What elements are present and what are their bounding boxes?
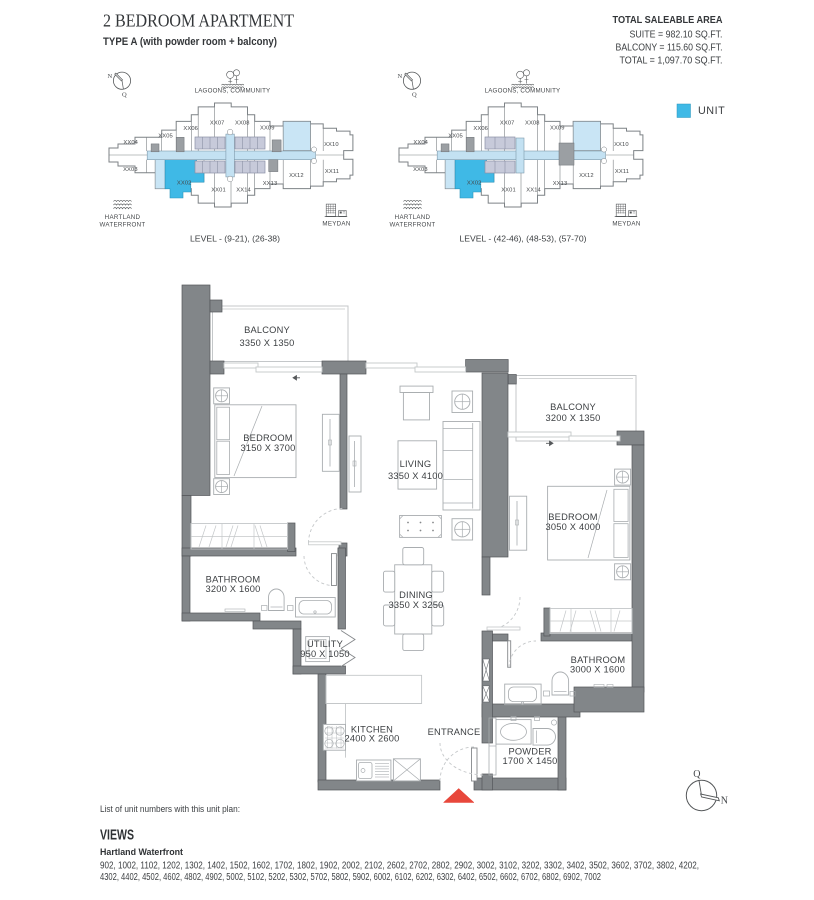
- svg-text:XX10: XX10: [614, 142, 629, 148]
- svg-text:XX12: XX12: [289, 173, 304, 179]
- svg-text:XX07: XX07: [210, 120, 225, 126]
- svg-text:3200 X 1600: 3200 X 1600: [206, 584, 261, 594]
- svg-text:BALCONY: BALCONY: [244, 325, 290, 335]
- svg-text:950 X 1050: 950 X 1050: [300, 649, 350, 659]
- svg-text:LEVEL - (42-46), (48-53), (57-: LEVEL - (42-46), (48-53), (57-70): [460, 234, 587, 244]
- svg-text:Q: Q: [693, 769, 701, 780]
- svg-text:2400 X 2600: 2400 X 2600: [345, 734, 400, 744]
- svg-text:XX08: XX08: [235, 120, 250, 126]
- svg-text:LAGOONS, COMMUNITY: LAGOONS, COMMUNITY: [195, 88, 271, 95]
- svg-text:DINING: DINING: [399, 590, 433, 600]
- svg-text:1700 X 1450: 1700 X 1450: [503, 756, 558, 766]
- svg-text:N: N: [108, 73, 113, 80]
- svg-text:XX09: XX09: [260, 126, 275, 132]
- svg-text:BEDROOM: BEDROOM: [548, 512, 597, 522]
- svg-text:4302, 4402, 4502, 4602, 4802,: 4302, 4402, 4502, 4602, 4802, 4902, 5002…: [100, 872, 601, 883]
- svg-text:XX02: XX02: [467, 181, 482, 187]
- svg-text:XX12: XX12: [579, 173, 594, 179]
- svg-text:3150 X 3700: 3150 X 3700: [241, 443, 296, 453]
- svg-text:LEVEL - (9-21), (26-38): LEVEL - (9-21), (26-38): [190, 234, 280, 244]
- svg-text:3000 X 1600: 3000 X 1600: [570, 665, 625, 675]
- svg-text:TOTAL SALEABLE AREA: TOTAL SALEABLE AREA: [613, 14, 723, 26]
- svg-text:XX10: XX10: [324, 142, 339, 148]
- svg-text:XX08: XX08: [525, 120, 540, 126]
- svg-text:XX14: XX14: [236, 188, 251, 194]
- svg-text:XX01: XX01: [211, 188, 226, 194]
- svg-text:XX01: XX01: [501, 188, 516, 194]
- svg-text:UNIT: UNIT: [698, 105, 725, 117]
- svg-text:XX11: XX11: [325, 169, 339, 175]
- svg-text:Q: Q: [412, 92, 417, 99]
- svg-text:SUITE = 982.10 SQ.FT.: SUITE = 982.10 SQ.FT.: [630, 30, 723, 41]
- svg-text:XX05: XX05: [448, 134, 463, 140]
- svg-text:MEYDAN: MEYDAN: [322, 221, 350, 228]
- svg-text:3350 X 4100: 3350 X 4100: [388, 471, 443, 481]
- svg-text:TYPE A (with powder room + bal: TYPE A (with powder room + balcony): [103, 36, 277, 48]
- svg-text:VIEWS: VIEWS: [100, 827, 134, 844]
- svg-text:LIVING: LIVING: [400, 459, 432, 469]
- svg-text:XX03: XX03: [123, 167, 138, 173]
- svg-text:LAGOONS, COMMUNITY: LAGOONS, COMMUNITY: [485, 88, 561, 95]
- svg-text:WATERFRONT: WATERFRONT: [100, 222, 146, 229]
- svg-text:Q: Q: [122, 92, 127, 99]
- svg-text:BEDROOM: BEDROOM: [243, 433, 292, 443]
- svg-text:Hartland Waterfront: Hartland Waterfront: [100, 847, 183, 857]
- svg-text:XX09: XX09: [550, 126, 565, 132]
- svg-text:BATHROOM: BATHROOM: [571, 655, 626, 665]
- svg-text:List of unit numbers with this: List of unit numbers with this unit plan…: [100, 804, 240, 814]
- svg-text:XX04: XX04: [413, 140, 428, 146]
- svg-text:XX13: XX13: [263, 181, 278, 187]
- svg-text:POWDER: POWDER: [508, 747, 551, 757]
- svg-text:XX03: XX03: [413, 167, 428, 173]
- svg-text:XX11: XX11: [615, 169, 629, 175]
- svg-text:902, 1002, 1102, 1202, 1302, 1: 902, 1002, 1102, 1202, 1302, 1402, 1502,…: [100, 861, 699, 872]
- svg-text:3350 X 3250: 3350 X 3250: [389, 600, 444, 610]
- svg-text:3200 X 1350: 3200 X 1350: [546, 413, 601, 423]
- svg-text:WATERFRONT: WATERFRONT: [390, 222, 436, 229]
- svg-text:N: N: [721, 796, 728, 807]
- svg-text:XX02: XX02: [177, 181, 192, 187]
- svg-text:TOTAL = 1,097.70 SQ.FT.: TOTAL = 1,097.70 SQ.FT.: [620, 56, 723, 67]
- svg-text:MEYDAN: MEYDAN: [612, 221, 640, 228]
- svg-text:HARTLAND: HARTLAND: [105, 214, 141, 221]
- svg-text:HARTLAND: HARTLAND: [395, 214, 431, 221]
- svg-text:BATHROOM: BATHROOM: [206, 575, 261, 585]
- svg-text:3350 X 1350: 3350 X 1350: [240, 338, 295, 348]
- svg-text:BALCONY = 115.60 SQ.FT.: BALCONY = 115.60 SQ.FT.: [616, 43, 723, 54]
- svg-text:XX13: XX13: [553, 181, 568, 187]
- svg-text:XX07: XX07: [500, 120, 515, 126]
- svg-text:XX06: XX06: [473, 126, 488, 132]
- svg-text:XX04: XX04: [123, 140, 138, 146]
- svg-text:3050 X 4000: 3050 X 4000: [546, 522, 601, 532]
- svg-text:UTILITY: UTILITY: [307, 639, 343, 649]
- svg-text:ENTRANCE: ENTRANCE: [428, 727, 481, 737]
- svg-text:XX14: XX14: [526, 188, 541, 194]
- svg-text:BALCONY: BALCONY: [550, 402, 596, 412]
- svg-text:N: N: [398, 73, 403, 80]
- svg-text:2 BEDROOM APARTMENT: 2 BEDROOM APARTMENT: [103, 11, 294, 31]
- svg-text:XX05: XX05: [158, 134, 173, 140]
- svg-text:XX06: XX06: [183, 126, 198, 132]
